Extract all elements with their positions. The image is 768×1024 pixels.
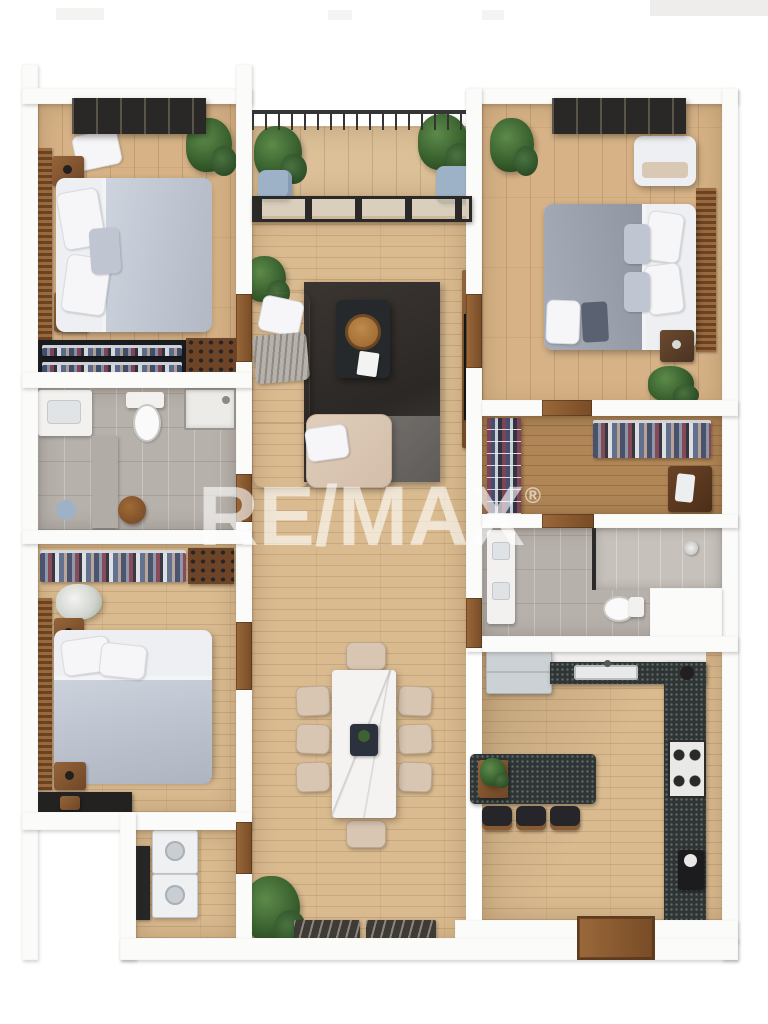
closet-hanging-rail: [593, 420, 711, 458]
kitchen-faucet: [604, 660, 611, 667]
door-laundry: [236, 822, 252, 874]
bathroom2-glass-partition: [592, 528, 596, 590]
image-artifact: [56, 8, 104, 20]
door-closet-to-bathroom2: [542, 514, 594, 528]
bedroom2-accent-pillow: [624, 272, 650, 312]
magazine: [356, 351, 379, 378]
entry-threshold: [577, 916, 655, 960]
door-bathroom1: [236, 474, 252, 522]
dining-chair-left: [295, 723, 330, 754]
wall-bathroom2-corner: [650, 588, 722, 638]
kitchen-cooktop: [668, 740, 706, 798]
bathroom2-shower-head: [684, 541, 698, 555]
console-wood-box: [60, 796, 80, 810]
folded-clothes-row: [42, 345, 182, 356]
coffee-table: [336, 300, 390, 378]
wall-bedroom3-bottom: [22, 812, 252, 830]
dining-chair-right: [397, 761, 432, 792]
dining-chair-head-bottom: [346, 820, 386, 848]
kitchen-backsplash: [550, 652, 706, 662]
sofa-throw-blanket: [252, 332, 310, 385]
bathroom1-shower-drain: [222, 396, 230, 404]
wall-bathroom2-kitchen: [482, 636, 738, 652]
door-bedroom3: [236, 622, 252, 690]
closet-shoe-rack: [487, 418, 521, 514]
washer-door: [165, 841, 185, 861]
bedroom3-wardrobe-louver: [38, 598, 52, 790]
bedroom2-accent-pillow: [624, 224, 650, 264]
kitchen-kettle: [680, 666, 694, 680]
bathroom2-toilet-tank: [629, 597, 644, 617]
dryer-door: [165, 885, 185, 905]
bathroom1-shower-tray: [184, 388, 236, 430]
round-wood-tray: [345, 314, 381, 350]
bathroom2-sink: [492, 542, 510, 560]
wall-bathroom1-bedroom3: [22, 530, 252, 544]
bedroom1-wardrobe-louver: [38, 148, 52, 340]
bathroom1-round-mat: [56, 500, 76, 520]
balcony-railing: [252, 110, 466, 130]
dining-chair-left: [295, 685, 331, 717]
bathroom1-vanity: [38, 390, 92, 436]
lamp: [672, 340, 681, 349]
dining-chair-right: [397, 723, 432, 754]
bedroom3-bed: [54, 630, 212, 780]
bedroom3-shoe-shelf: [188, 548, 234, 584]
bedroom2-headboard-louver: [696, 188, 716, 352]
door-bathroom2: [466, 598, 482, 648]
bedroom2-towel-white: [545, 299, 581, 344]
dining-table: [332, 670, 396, 818]
bathroom2-sink: [492, 582, 510, 600]
bathroom2-shower-floor: [594, 528, 722, 590]
bathroom2-vanity: [487, 530, 515, 624]
laundry-washer: [152, 830, 198, 874]
closet-dresser: [668, 466, 712, 512]
bedroom3-pillow: [98, 642, 147, 681]
lamp: [65, 771, 74, 780]
dining-chair-right: [397, 685, 433, 717]
dining-chair-head-top: [346, 642, 386, 670]
bathroom1-toilet-bowl: [133, 404, 161, 442]
bedroom2-bed: [544, 204, 696, 350]
wall-bedroom1-bathroom1: [22, 372, 252, 388]
centerpiece-plant: [358, 730, 370, 742]
wall-bedroom2-closet: [482, 400, 738, 416]
bedroom1-bed: [56, 178, 208, 332]
laundry-shelf-unit: [136, 846, 150, 920]
bedroom2-pergola-slats: [552, 98, 686, 134]
bedroom1-accent-pillow: [88, 227, 121, 275]
image-artifact: [482, 10, 504, 20]
bedroom2-plant-bottom: [648, 366, 694, 402]
kitchen-sink: [574, 665, 638, 680]
kitchen-bar-stool: [550, 806, 580, 830]
kitchen-bar-stool: [516, 806, 546, 830]
kitchen-coffee-machine: [678, 850, 704, 890]
image-artifact: [328, 10, 352, 20]
bathroom1-stool: [118, 496, 146, 524]
sofa-pillow-chaise: [304, 423, 350, 463]
coffee-machine-knob: [684, 854, 697, 867]
wall-spine-right: [466, 88, 482, 652]
laundry-dryer: [152, 874, 198, 918]
bedroom2-nightstand: [660, 330, 694, 362]
kitchen-fridge: [486, 650, 552, 694]
kitchen-bar-stool: [482, 806, 512, 830]
bedroom3-nightstand-bottom: [54, 762, 86, 790]
door-bedroom2-to-closet: [542, 400, 592, 416]
image-artifact: [650, 0, 768, 16]
dresser-shirt: [675, 473, 696, 503]
balcony-sliding-glass-door: [252, 196, 472, 222]
bedroom2-towel-dark: [581, 301, 609, 342]
floorplan-render: RE/MAX®: [0, 0, 768, 1024]
island-plant: [480, 758, 506, 786]
dining-chair-left: [295, 761, 330, 792]
kitchen-island: [470, 754, 596, 804]
bathroom1-cabinet: [92, 436, 118, 528]
bedroom2-plant-top: [490, 118, 534, 172]
door-bedroom2: [466, 294, 482, 368]
bedroom3-hanging-rail: [40, 550, 186, 582]
bedroom1-pergola-slats: [72, 98, 206, 134]
door-bedroom1: [236, 294, 252, 362]
bathroom1-sink: [47, 400, 81, 424]
bedroom2-bench: [634, 136, 696, 186]
lamp: [63, 165, 72, 174]
bench-linens: [642, 162, 688, 178]
wall-closet-bathroom2: [482, 514, 738, 528]
entry-plant: [244, 876, 300, 942]
